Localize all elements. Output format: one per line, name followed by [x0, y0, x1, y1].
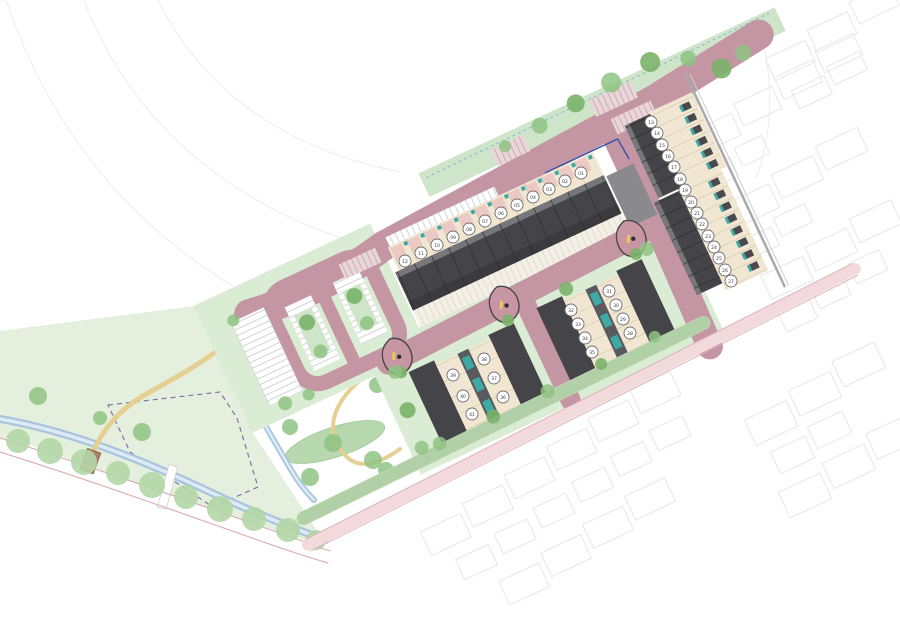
- svg-text:13: 13: [648, 120, 654, 126]
- svg-text:36: 36: [500, 395, 506, 401]
- site-plan-page: 01 02 03 04 05 06 07 08 09 10 11 12 13 1…: [0, 0, 900, 636]
- svg-text:05: 05: [514, 203, 520, 209]
- svg-text:15: 15: [659, 143, 665, 149]
- plot-badge: 09: [447, 231, 459, 243]
- tree-icon: [242, 507, 266, 531]
- svg-text:03: 03: [546, 187, 552, 193]
- svg-text:33: 33: [575, 322, 581, 328]
- plot-badge: 17: [668, 161, 680, 173]
- svg-text:28: 28: [627, 331, 633, 337]
- plot-badge: 19: [679, 184, 691, 196]
- tree-icon: [37, 438, 63, 464]
- plot-badge: 03: [543, 183, 555, 195]
- context-road-arc: [158, 0, 400, 172]
- plot-badge: 38: [478, 353, 490, 365]
- svg-text:22: 22: [699, 222, 705, 228]
- svg-text:21: 21: [694, 211, 700, 217]
- bench-icon: [500, 301, 503, 309]
- bench-icon: [392, 352, 395, 360]
- plot-badge: 16: [662, 150, 674, 162]
- svg-text:32: 32: [568, 308, 574, 314]
- plot-badge: 37: [488, 372, 500, 384]
- tree-icon: [6, 429, 30, 453]
- plot-badge: 07: [479, 215, 491, 227]
- plot-badge: 02: [559, 175, 571, 187]
- svg-text:16: 16: [665, 154, 671, 160]
- tree-icon: [276, 518, 300, 542]
- plot-badge: 13: [645, 116, 657, 128]
- context-buildings-southeast: [738, 342, 900, 518]
- tree-icon: [139, 472, 165, 498]
- svg-text:12: 12: [402, 259, 408, 265]
- plot-badge: 33: [572, 318, 584, 330]
- svg-text:09: 09: [450, 235, 456, 241]
- context-buildings-northeast: [759, 0, 900, 113]
- svg-text:41: 41: [469, 412, 475, 418]
- tree-icon: [106, 461, 130, 485]
- plot-badge: 34: [579, 332, 591, 344]
- plot-badge: 32: [565, 304, 577, 316]
- svg-text:01: 01: [578, 171, 584, 177]
- plot-badge: 01: [575, 167, 587, 179]
- plot-badge: 04: [527, 191, 539, 203]
- svg-text:10: 10: [434, 243, 440, 249]
- tree-icon: [301, 468, 319, 486]
- tree-icon: [71, 449, 97, 475]
- tree-icon: [324, 434, 342, 452]
- plot-badge: 26: [719, 264, 731, 276]
- svg-text:38: 38: [481, 357, 487, 363]
- context-road-arc: [6, 0, 300, 320]
- svg-text:26: 26: [722, 268, 728, 274]
- plot-badge: 29: [617, 313, 629, 325]
- plot-badge: 21: [691, 207, 703, 219]
- tree-icon: [133, 423, 151, 441]
- plot-badge: 40: [457, 390, 469, 402]
- plot-badge: 25: [713, 252, 725, 264]
- tree-icon: [207, 496, 233, 522]
- bench-icon: [627, 235, 630, 243]
- svg-text:11: 11: [418, 251, 424, 257]
- svg-text:14: 14: [654, 131, 660, 137]
- plot-badge: 41: [466, 408, 478, 420]
- svg-text:30: 30: [613, 303, 619, 309]
- tree-icon: [29, 387, 47, 405]
- tree-icon: [93, 411, 107, 425]
- plot-badge: 11: [415, 247, 427, 259]
- svg-text:37: 37: [491, 376, 497, 382]
- svg-text:39: 39: [450, 373, 456, 379]
- svg-text:17: 17: [671, 165, 677, 171]
- plot-badge: 35: [586, 346, 598, 358]
- plot-badge: 27: [725, 275, 737, 287]
- plot-badge: 05: [511, 199, 523, 211]
- svg-text:04: 04: [530, 195, 536, 201]
- plot-badge: 10: [431, 239, 443, 251]
- svg-text:40: 40: [460, 394, 466, 400]
- svg-text:29: 29: [620, 317, 626, 323]
- plot-badge: 28: [624, 327, 636, 339]
- svg-text:07: 07: [482, 219, 488, 225]
- svg-text:24: 24: [711, 245, 717, 251]
- plot-badge: 08: [463, 223, 475, 235]
- svg-text:35: 35: [589, 350, 595, 356]
- plot-badge: 14: [651, 127, 663, 139]
- plot-badge: 36: [497, 391, 509, 403]
- plot-badge: 12: [399, 255, 411, 267]
- plot-badge: 23: [702, 230, 714, 242]
- plot-badge: 31: [603, 285, 615, 297]
- svg-text:27: 27: [728, 279, 734, 285]
- plot-badge: 15: [656, 139, 668, 151]
- plot-badge: 18: [674, 173, 686, 185]
- plot-badge: 20: [685, 196, 697, 208]
- plot-badge: 39: [447, 369, 459, 381]
- context-road-arc: [84, 0, 372, 247]
- svg-text:23: 23: [705, 234, 711, 240]
- development-layer: [177, 0, 900, 552]
- svg-text:06: 06: [498, 211, 504, 217]
- site-plan-drawing: 01 02 03 04 05 06 07 08 09 10 11 12 13 1…: [0, 0, 900, 636]
- svg-text:02: 02: [562, 179, 568, 185]
- tree-icon: [174, 485, 198, 509]
- svg-text:31: 31: [606, 289, 612, 295]
- svg-text:25: 25: [716, 256, 722, 262]
- plot-badge: 30: [610, 299, 622, 311]
- plot-badge: 24: [708, 241, 720, 253]
- plot-badge: 06: [495, 207, 507, 219]
- svg-text:18: 18: [677, 177, 683, 183]
- svg-text:34: 34: [582, 336, 588, 342]
- svg-text:20: 20: [688, 200, 694, 206]
- svg-text:19: 19: [682, 188, 688, 194]
- svg-text:08: 08: [466, 227, 472, 233]
- plot-badge: 22: [696, 218, 708, 230]
- tree-icon: [282, 419, 298, 435]
